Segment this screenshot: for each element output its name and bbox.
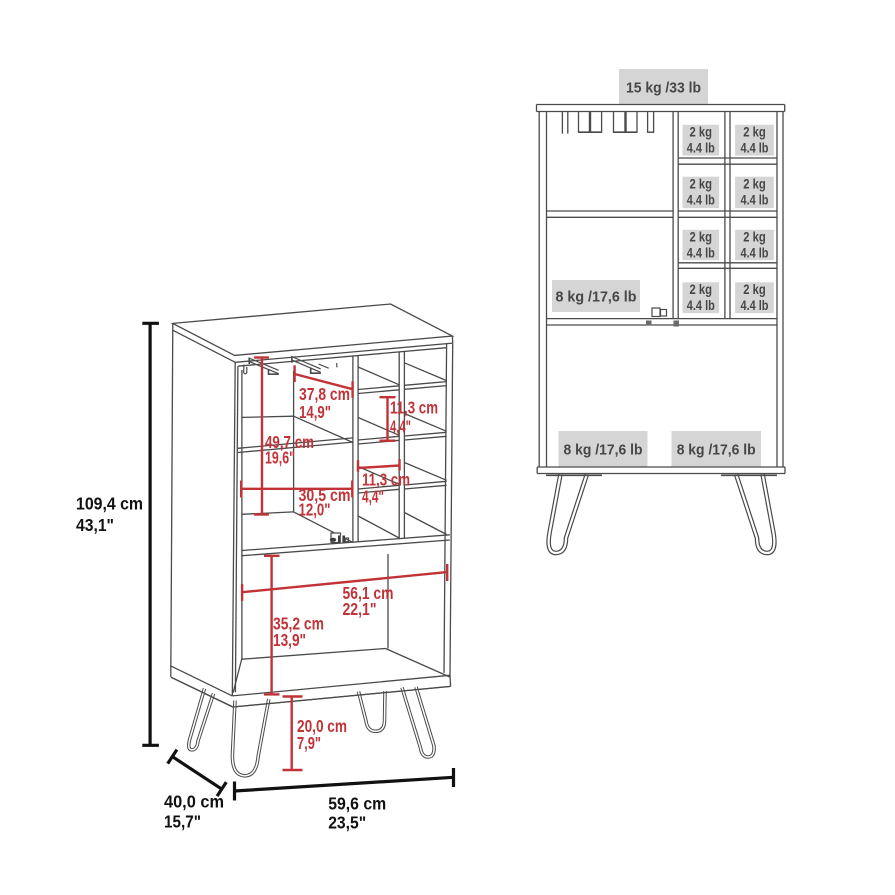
- svg-text:59,6 cm: 59,6 cm: [328, 793, 386, 813]
- svg-text:109,4 cm: 109,4 cm: [76, 493, 143, 513]
- svg-text:4,4": 4,4": [390, 417, 411, 437]
- svg-text:4.4 lb: 4.4 lb: [687, 245, 715, 260]
- svg-text:15,7": 15,7": [164, 812, 201, 832]
- svg-text:4.4 lb: 4.4 lb: [741, 245, 769, 260]
- svg-text:2 kg: 2 kg: [690, 125, 713, 140]
- svg-text:4.4 lb: 4.4 lb: [741, 192, 769, 207]
- svg-text:14,9": 14,9": [299, 402, 331, 422]
- svg-text:8 kg /17,6 lb: 8 kg /17,6 lb: [564, 442, 643, 459]
- svg-text:2 kg: 2 kg: [690, 176, 713, 191]
- svg-text:4.4 lb: 4.4 lb: [741, 298, 769, 313]
- svg-text:15 kg /33 lb: 15 kg /33 lb: [626, 80, 701, 97]
- svg-text:2 kg: 2 kg: [743, 125, 766, 140]
- svg-text:40,0 cm: 40,0 cm: [164, 792, 224, 812]
- svg-text:12,0": 12,0": [299, 500, 331, 520]
- svg-text:7,9": 7,9": [297, 733, 321, 753]
- svg-text:8 kg /17,6 lb: 8 kg /17,6 lb: [556, 289, 637, 306]
- svg-text:4.4 lb: 4.4 lb: [741, 140, 769, 155]
- svg-text:23,5": 23,5": [328, 812, 366, 832]
- svg-text:2 kg: 2 kg: [690, 230, 713, 245]
- svg-text:4.4 lb: 4.4 lb: [687, 192, 715, 207]
- svg-text:2 kg: 2 kg: [743, 230, 766, 245]
- svg-text:4.4 lb: 4.4 lb: [687, 140, 715, 155]
- svg-text:13,9": 13,9": [273, 630, 306, 650]
- svg-text:2 kg: 2 kg: [743, 176, 766, 191]
- svg-text:22,1": 22,1": [343, 599, 377, 619]
- svg-text:4.4 lb: 4.4 lb: [687, 298, 715, 313]
- svg-text:2 kg: 2 kg: [743, 282, 766, 297]
- svg-text:19,6": 19,6": [265, 448, 295, 468]
- svg-text:8 kg /17,6 lb: 8 kg /17,6 lb: [677, 442, 756, 459]
- svg-text:2 kg: 2 kg: [690, 282, 713, 297]
- svg-text:11,3 cm: 11,3 cm: [390, 398, 438, 418]
- svg-text:43,1": 43,1": [76, 515, 114, 535]
- svg-text:4,4": 4,4": [362, 487, 384, 507]
